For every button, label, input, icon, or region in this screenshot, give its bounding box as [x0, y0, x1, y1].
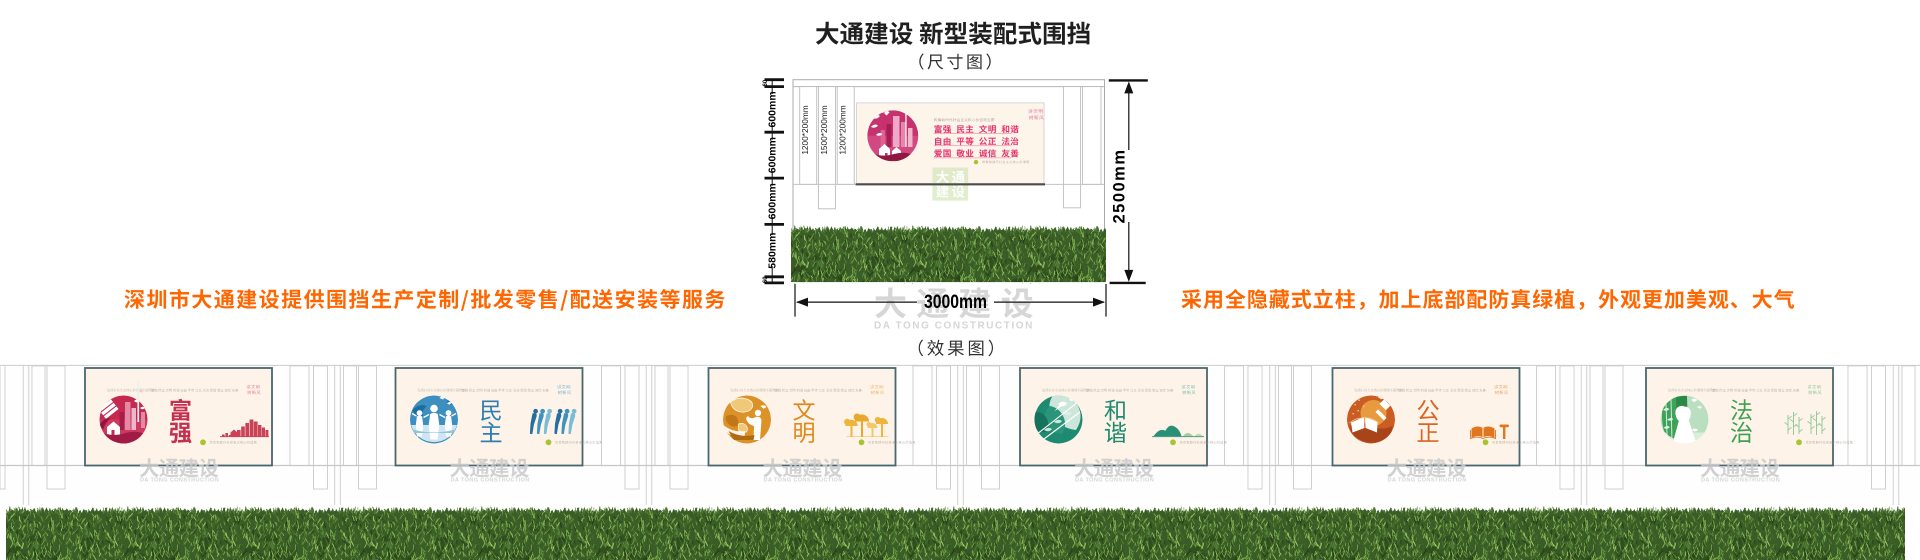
svg-text:3000mm: 3000mm [924, 292, 987, 313]
svg-text:580mm: 580mm [767, 232, 779, 268]
svg-text:DA TONG CONSTRUCTION: DA TONG CONSTRUCTION [874, 321, 1034, 332]
svg-text:600mm: 600mm [767, 183, 779, 219]
svg-text:1500*200mm: 1500*200mm [819, 105, 829, 154]
svg-text:1200*200mm: 1200*200mm [800, 105, 810, 154]
svg-text:60: 60 [763, 276, 769, 283]
svg-text:60: 60 [763, 79, 769, 86]
svg-text:600mm: 600mm [767, 91, 779, 127]
svg-text:2500mm: 2500mm [1111, 148, 1129, 223]
svg-text:1200*200mm: 1200*200mm [838, 105, 848, 154]
svg-text:600mm: 600mm [767, 137, 779, 173]
